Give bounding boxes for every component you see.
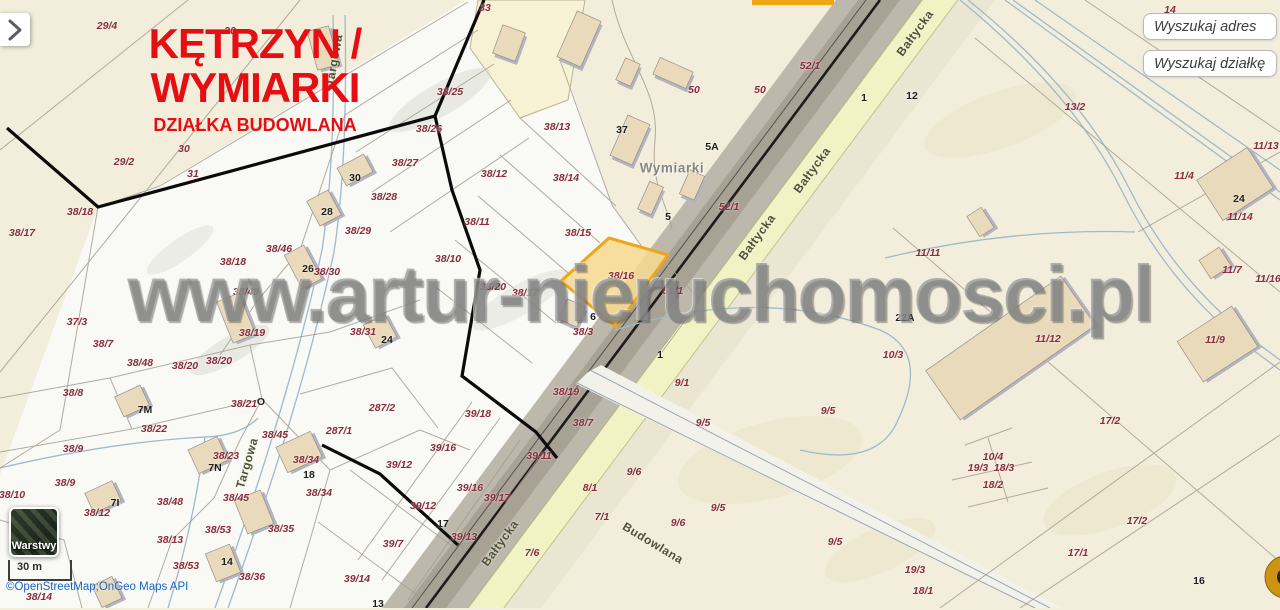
parcel-search-input[interactable] — [1143, 50, 1277, 77]
scale-bar: 30 m — [8, 560, 72, 581]
layers-button-label: Warstwy — [11, 540, 57, 552]
address-search — [1143, 13, 1277, 40]
chevron-right-icon — [6, 18, 24, 42]
parcel-search — [1143, 50, 1277, 77]
scale-bar-label: 30 m — [17, 561, 42, 573]
highlighted-strip — [752, 0, 834, 5]
address-search-input[interactable] — [1143, 13, 1277, 40]
sidebar-expand-button[interactable] — [0, 13, 30, 46]
layers-button[interactable]: Warstwy — [9, 507, 59, 557]
map-canvas[interactable] — [0, 0, 1280, 608]
map-app: 29/433143038/2552/1505029/2303138/2638/1… — [0, 0, 1280, 608]
map-attribution[interactable]: ©OpenStreetMap;OnGeo Maps API — [6, 581, 188, 593]
